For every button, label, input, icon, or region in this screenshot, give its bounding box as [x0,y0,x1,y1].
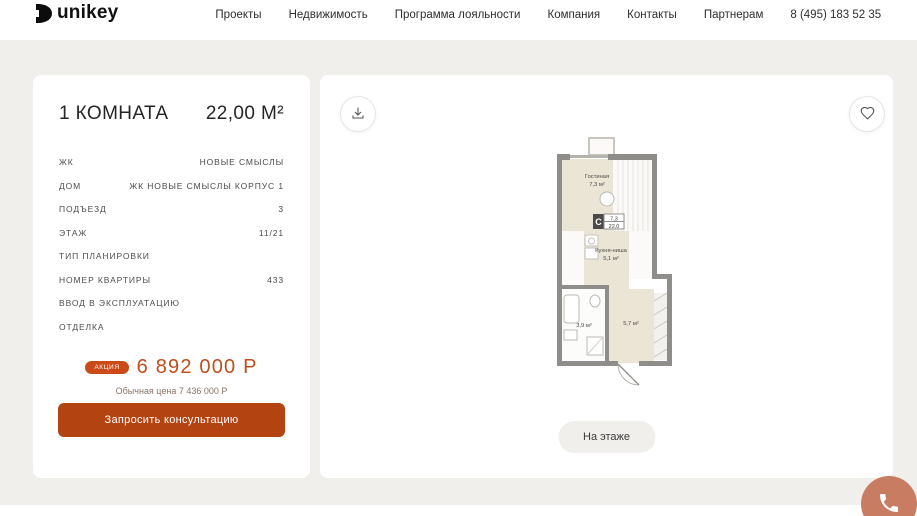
favorite-button[interactable] [849,96,885,132]
logo-icon [35,4,52,23]
plan-bathroom-area: 3,9 м² [576,323,592,329]
heart-icon [860,106,875,123]
promo-badge: АКЦИЯ [85,361,128,374]
nav-item-realty[interactable]: Недвижимость [289,9,368,21]
detail-row-zhk: ЖК НОВЫЕ СМЫСЛЫ [59,157,284,167]
plan-kitchen-name: Кухня-ниша [595,248,628,254]
page: unikey Проекты Недвижимость Программа ло… [0,0,917,516]
plan-living-area: 7,3 м² [589,182,605,188]
floor-plan: С 7,3 22,0 Гостиная 7,3 м² Кухня-ниша 5,… [551,135,673,392]
header: unikey Проекты Недвижимость Программа ло… [0,0,917,40]
detail-row-apt-number: НОМЕР КВАРТИРЫ 433 [59,275,284,285]
detail-row-finish: ОТДЕЛКА [59,322,284,332]
area-title: 22,00 М² [206,103,284,125]
nav-item-loyalty[interactable]: Программа лояльности [395,9,521,21]
apartment-info-card: 1 КОМНАТА 22,00 М² ЖК НОВЫЕ СМЫСЛЫ ДОМ Ж… [33,75,310,478]
detail-row-entrance: ПОДЪЕЗД 3 [59,204,284,214]
download-icon [351,106,365,123]
detail-row-floor: ЭТАЖ 11/21 [59,228,284,238]
plan-hall-area: 5,7 м² [623,321,639,327]
apartment-details: ЖК НОВЫЕ СМЫСЛЫ ДОМ ЖК НОВЫЕ СМЫСЛЫ КОРП… [59,157,284,332]
plan-info-box: С 7,3 22,0 [593,214,624,230]
nav-item-company[interactable]: Компания [548,9,601,21]
on-floor-button[interactable]: На этаже [558,421,655,453]
price-block: АКЦИЯ 6 892 000 Р Обычная цена 7 436 000… [59,356,284,396]
detail-row-commissioning: ВВОД В ЭКСПЛУАТАЦИЮ [59,298,284,308]
footer-strip [0,505,917,516]
floor-plan-card: С 7,3 22,0 Гостиная 7,3 м² Кухня-ниша 5,… [320,75,893,478]
header-phone-link[interactable]: 8 (495) 183 52 35 [790,9,881,21]
plan-kitchen-area: 5,1 м² [603,256,619,262]
plan-living-name: Гостиная [585,174,609,180]
rooms-title: 1 КОМНАТА [59,103,168,125]
logo-text: unikey [57,2,118,24]
nav-item-projects[interactable]: Проекты [215,9,261,21]
download-plan-button[interactable] [340,96,376,132]
plan-info-total: 22,0 [609,224,620,230]
phone-icon [877,491,901,516]
nav-item-partners[interactable]: Партнерам [704,9,764,21]
plan-info-letter: С [595,217,602,227]
logo[interactable]: unikey [35,2,118,24]
apartment-title-row: 1 КОМНАТА 22,00 М² [59,103,284,125]
main-nav: Проекты Недвижимость Программа лояльност… [215,7,917,23]
old-price: Обычная цена 7 436 000 Р [59,386,284,396]
current-price: 6 892 000 Р [137,356,258,379]
request-consultation-button[interactable]: Запросить консультацию [58,403,285,437]
plan-info-living: 7,3 [610,217,618,223]
plan-balcony-outline [589,138,614,155]
detail-row-dom: ДОМ ЖК НОВЫЕ СМЫСЛЫ КОРПУС 1 [59,181,284,191]
phone-fab-button[interactable] [861,476,917,516]
nav-item-contacts[interactable]: Контакты [627,9,677,21]
detail-row-plan-type: ТИП ПЛАНИРОВКИ [59,251,284,261]
